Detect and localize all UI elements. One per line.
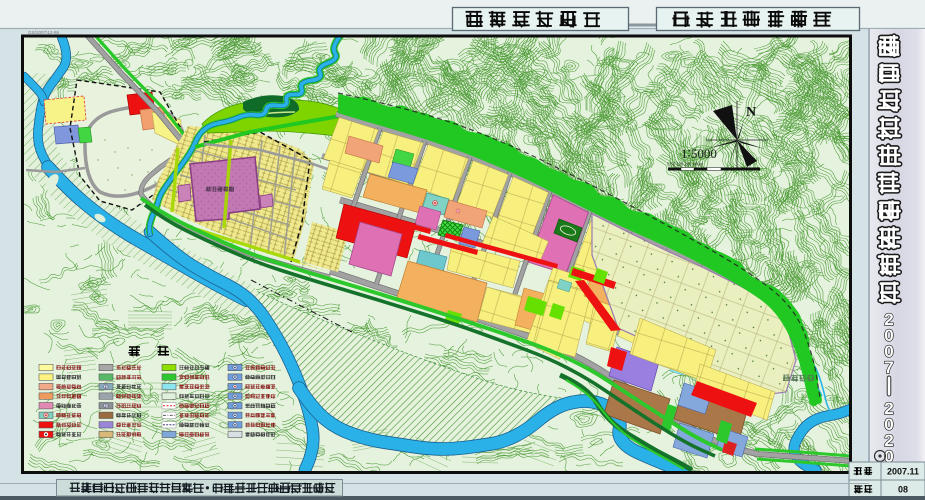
svg-text:GS(2007)12-86: GS(2007)12-86	[28, 30, 60, 35]
svg-text:P: P	[105, 404, 108, 409]
svg-text:P: P	[105, 384, 108, 389]
svg-text:2007.11: 2007.11	[887, 467, 919, 477]
svg-text:1∶5000: 1∶5000	[681, 146, 717, 161]
svg-text:0 50 100 200 4: 0 50 100 200 400m	[667, 162, 704, 167]
svg-text:7: 7	[884, 358, 893, 377]
svg-text:08: 08	[898, 485, 908, 495]
svg-text:N: N	[746, 105, 756, 120]
